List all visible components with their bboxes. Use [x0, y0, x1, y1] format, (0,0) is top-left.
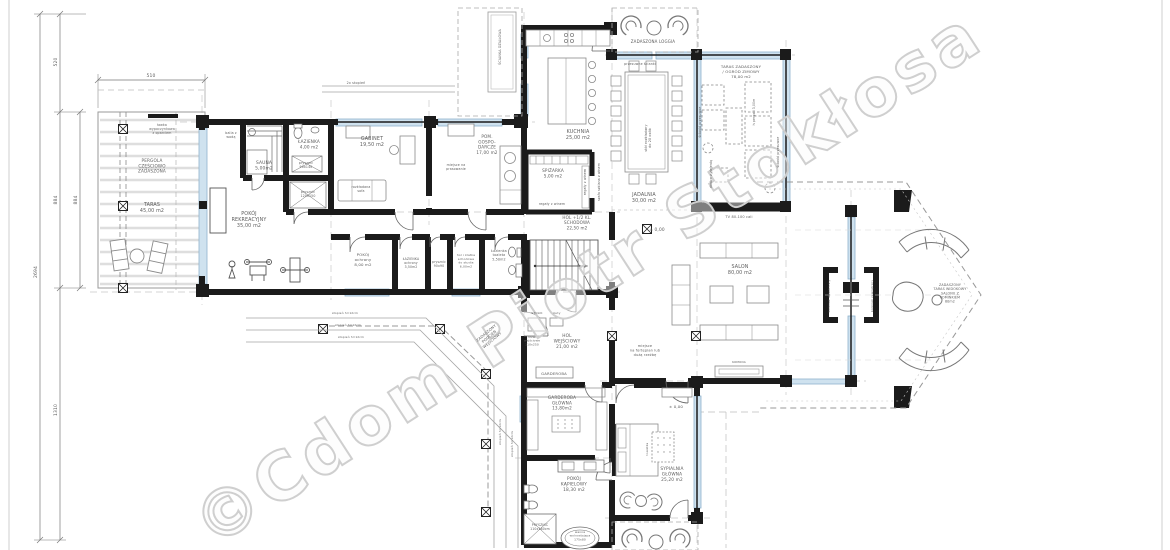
label-fortepian: miejscena fortepian lubdużą rzeźbę — [630, 344, 661, 357]
label-salon-poziom: ± 0,00 — [649, 227, 665, 233]
label-toaletka: toaletka — [645, 442, 649, 455]
bath-room — [524, 460, 604, 549]
label-miejsce-prasowanie: miejsce naprasowanie — [446, 163, 466, 171]
label-dim-left-2694: 2694 — [33, 266, 39, 278]
label-zadaszona-loggia: ZADASZONA LOGGIA — [631, 39, 676, 44]
label-taras-widokowy: ZADASZONYTARAS WIDOKOWYSALONU ZKOMINKIEM… — [933, 283, 968, 304]
label-dim-left-884-inner: 884 — [73, 195, 79, 204]
label-kominek-wewnetrzny: kominek dwustronny — [827, 279, 831, 312]
label-stopien-1: stopień h=12cm — [332, 311, 358, 315]
label-stol-rozkladany: stół rozkładanydo 20 osób — [644, 124, 652, 151]
terrace-furniture — [110, 239, 168, 273]
label-h-pergoli: h pergoli 3,00m — [752, 99, 756, 126]
label-prysznic-110x180: PRYSZNIC110x180cm — [530, 523, 550, 531]
curved-sofa-north — [899, 229, 969, 258]
label-garderoba-glowna: GARDEROBAGŁÓWNA13,80m2 — [548, 395, 576, 411]
label-gabinet: GABINET19,50 m2 — [360, 136, 384, 148]
north-porch — [322, 8, 522, 116]
loggia-top — [612, 8, 698, 52]
wardrobe-island-dots — [557, 419, 572, 428]
label-stopien-4: stopień h=12cm — [498, 419, 502, 445]
salon-furniture — [672, 243, 778, 377]
label-stopnie-2x: 2x stopień — [347, 81, 366, 85]
label-kominek-zewnetrzny: kominek zewnętrzny — [870, 280, 874, 313]
glass-salon-south — [790, 379, 846, 384]
label-hol-schodowa: HOL +1/2 KL.SCHODOWA22,50 m2 — [562, 215, 591, 230]
label-regaly-winem: regały z winem — [539, 202, 565, 206]
hex-post-south — [894, 386, 912, 408]
label-scianki-przesuwne-e: ścianki przesuwne — [776, 137, 780, 168]
floor-plan-page: ©Cdom Piotr Stokłosa 5105208848841310269… — [0, 0, 1170, 550]
label-lazienka: ŁAZIENKA4,00 m2 — [297, 139, 320, 149]
label-stolik: STOLIK — [531, 311, 542, 315]
dining-furniture — [611, 61, 682, 184]
label-ogrod-zimowy: TARAS ZADASZONY/ OGRÓD ZIMOWY78,00 m2 — [720, 64, 762, 79]
label-regaly-winem-pion: regały z winem — [583, 169, 587, 195]
label-sypialnia-poziom: ± 0,00 — [669, 404, 683, 409]
label-lawka-wypoczynkowa: ławkawypoczynkowaz oparciem — [149, 123, 175, 135]
label-salon: SALON80,00 m2 — [728, 264, 752, 276]
label-stopien-5: stopień h=12cm — [510, 431, 514, 457]
label-komoda: KOMODA — [732, 360, 746, 364]
label-spizarka: SPIŻARKA5,00 m2 — [542, 168, 564, 178]
label-szafa-wino: szafa szklana z winem — [597, 163, 601, 201]
label-prysznic-120x150: prysznic120x150 — [300, 190, 315, 198]
label-stopien-2: stopień h=12cm — [335, 323, 361, 327]
label-tv: TV 80-100 cali — [724, 215, 752, 219]
label-dim-top-510: 510 — [146, 73, 155, 79]
floor-plan-drawing: ©Cdom Piotr Stokłosa 5105208848841310269… — [0, 0, 1170, 550]
label-stopien-3: stopień h=12cm — [338, 335, 364, 339]
label-pokoj-rekreacyjny: POKÓJREKREACYJNY35,00 m2 — [232, 210, 267, 229]
label-pokoj-ochrony: POKÓJochrony8,00 m2 — [354, 252, 372, 267]
kitchen-furniture — [526, 30, 610, 125]
label-lazienka-toaleta: Łazienkatoaleta5,50m2 — [490, 249, 507, 261]
label-sauna: SAUNA5,00m2 — [255, 160, 273, 172]
label-pokoj-kapielowy: POKÓJKĄPIELOWY18,30 m2 — [561, 475, 587, 493]
label-hol-studio: hol i klatkaschodowado studia6,00m2 — [457, 253, 475, 268]
label-pom-gospodarcze: POM.GOSPO-DARCZE17,00 m2 — [476, 134, 497, 155]
label-scianki-przesuwne-w: ścianki przesuwne — [698, 107, 702, 138]
label-prysznic-90x90: prysznic90x90 — [432, 260, 446, 268]
bench — [148, 114, 178, 118]
label-dim-left-1310: 1310 — [53, 404, 59, 416]
label-balia: balia zwodą — [225, 131, 237, 139]
spizarka-shelves — [530, 156, 589, 208]
label-sypialnia-glowna: SYPIALNIAGŁÓWNA25,20 m2 — [660, 466, 683, 483]
label-garderoba: GARDEROBA — [541, 371, 567, 376]
label-lazienka-ochrony: ŁAZIENKAochrony3,50m2 — [402, 257, 420, 269]
label-scianka-dzialowa: ŚCIANKA DZIAŁOWA — [497, 29, 502, 65]
toilet-fixtures — [509, 247, 523, 277]
label-dim-left-884-outer: 884 — [53, 195, 59, 204]
label-kuchnia: KUCHNIA25,00 m2 — [566, 129, 590, 141]
loggia-bottom — [612, 522, 698, 550]
label-buty: buty — [553, 311, 560, 315]
terrace-pergola — [98, 90, 205, 293]
label-dim-left-520: 520 — [53, 57, 59, 66]
label-przesuwne-scianki: przesuwne ścianki — [624, 62, 656, 66]
label-prysznic-90x140: prysznic90x140 — [299, 161, 314, 169]
label-donice-zielen: donice z zielenią — [709, 160, 713, 188]
terrace-table — [892, 282, 923, 311]
label-pergola: PERGOLACZĘŚCIOWOZADASZONA — [138, 158, 166, 174]
